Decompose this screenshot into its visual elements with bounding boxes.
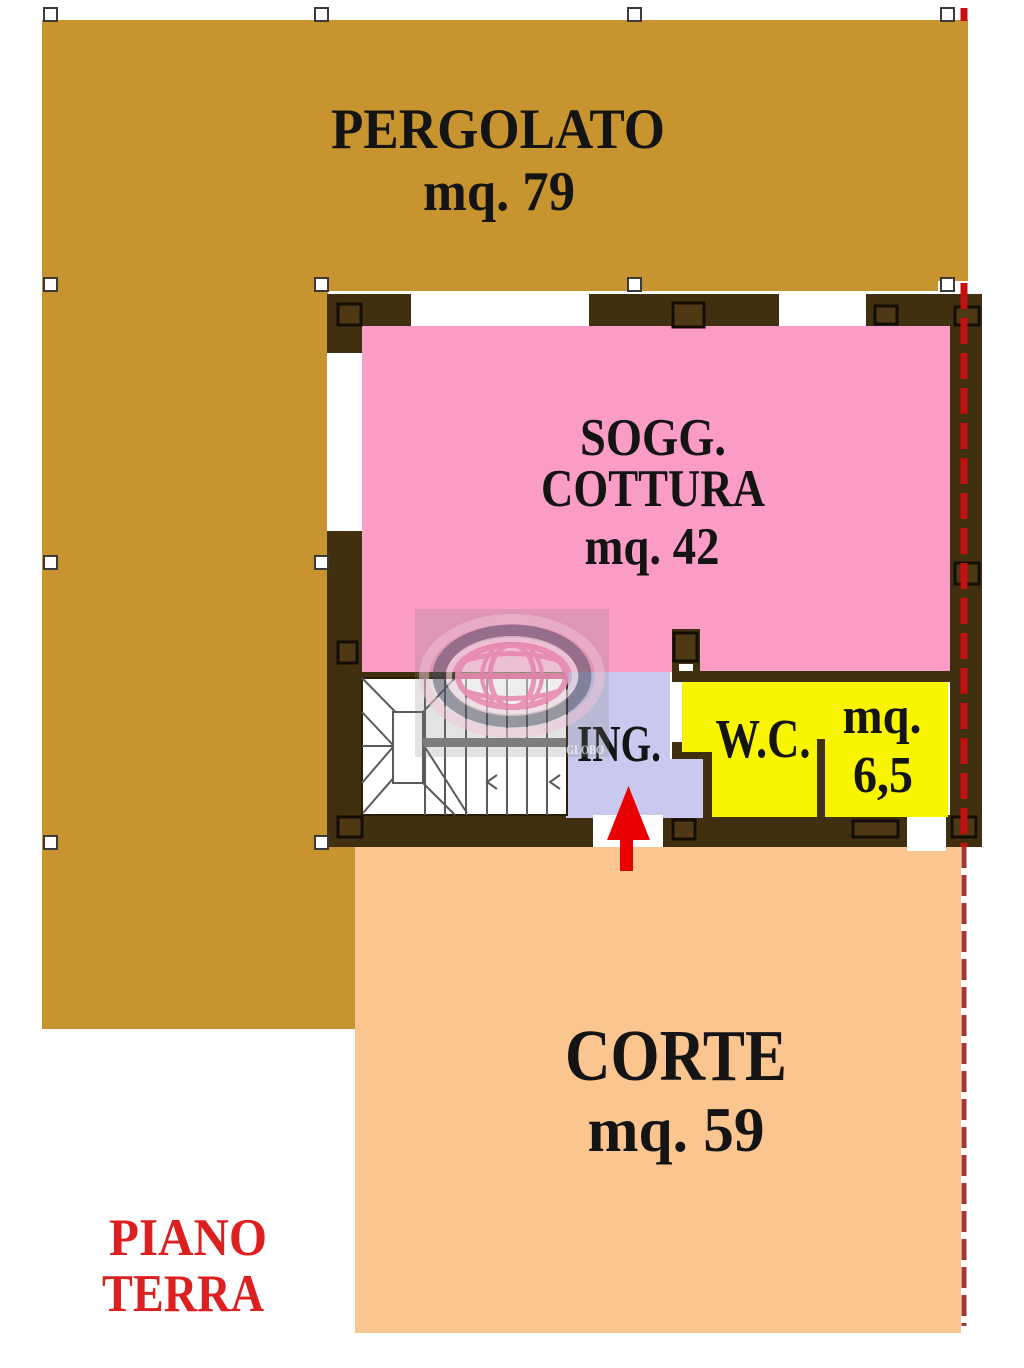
svg-text:TERRA: TERRA bbox=[102, 1265, 264, 1323]
svg-text:CORTE: CORTE bbox=[565, 1015, 787, 1096]
svg-text:mq. 79: mq. 79 bbox=[423, 161, 575, 223]
svg-text:COTTURA: COTTURA bbox=[541, 460, 765, 518]
svg-text:6,5: 6,5 bbox=[853, 747, 913, 804]
svg-text:mq. 42: mq. 42 bbox=[585, 518, 720, 576]
svg-text:W.C.: W.C. bbox=[716, 708, 811, 769]
svg-text:mq. 59: mq. 59 bbox=[588, 1095, 765, 1165]
svg-text:GLOBO: GLOBO bbox=[566, 743, 604, 757]
svg-text:PIANO: PIANO bbox=[109, 1209, 267, 1267]
svg-text:SOGG.: SOGG. bbox=[580, 409, 726, 467]
svg-text:mq.: mq. bbox=[843, 688, 922, 745]
svg-text:PERGOLATO: PERGOLATO bbox=[331, 98, 665, 161]
